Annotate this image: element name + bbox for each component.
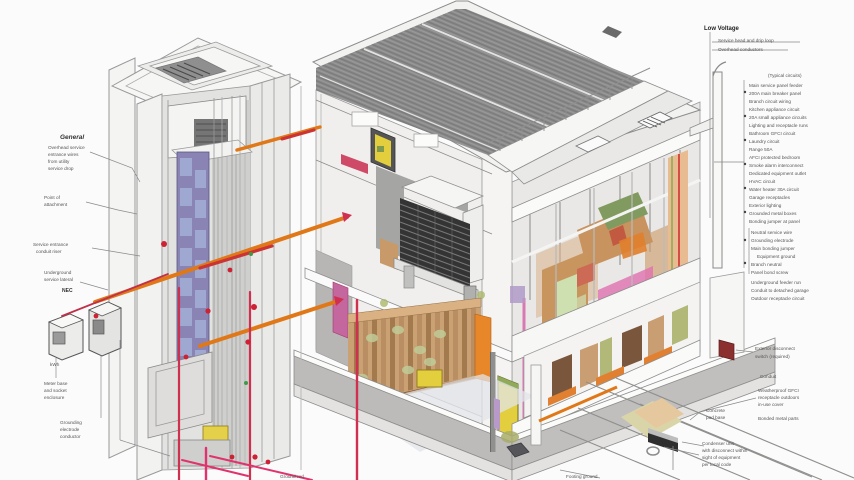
- svg-text:Weatherproof GFCI: Weatherproof GFCI: [758, 388, 799, 393]
- svg-text:AFCI protected bedroom: AFCI protected bedroom: [749, 155, 800, 160]
- svg-text:Branch circuit wiring: Branch circuit wiring: [749, 99, 791, 104]
- svg-text:Smoke alarm interconnect: Smoke alarm interconnect: [749, 163, 804, 168]
- svg-text:Equipment ground: Equipment ground: [757, 254, 796, 259]
- svg-text:switch (required): switch (required): [755, 354, 790, 359]
- svg-text:Grounded metal boxes: Grounded metal boxes: [749, 211, 797, 216]
- svg-text:receptacle outdoors: receptacle outdoors: [758, 395, 800, 400]
- svg-text:and socket: and socket: [44, 388, 67, 393]
- svg-text:Overhead conductors: Overhead conductors: [718, 47, 763, 52]
- svg-text:Neutral service wire: Neutral service wire: [751, 230, 793, 235]
- svg-text:entrance wires: entrance wires: [48, 152, 79, 157]
- svg-text:Outdoor receptacle circuit: Outdoor receptacle circuit: [751, 296, 805, 301]
- svg-text:Bathroom GFCI circuit: Bathroom GFCI circuit: [749, 131, 796, 136]
- svg-text:per local code: per local code: [702, 462, 732, 467]
- svg-text:enclosure: enclosure: [44, 395, 65, 400]
- svg-text:Ground rod: Ground rod: [280, 474, 304, 479]
- svg-text:Concrete: Concrete: [706, 408, 725, 413]
- svg-text:in-use cover: in-use cover: [758, 402, 784, 407]
- svg-text:kWh: kWh: [50, 362, 60, 367]
- svg-text:General: General: [60, 134, 84, 141]
- svg-text:conductor: conductor: [60, 434, 81, 439]
- svg-text:Laundry circuit: Laundry circuit: [749, 139, 780, 144]
- svg-text:Branch neutral: Branch neutral: [751, 262, 782, 267]
- svg-text:Exterior disconnect: Exterior disconnect: [755, 346, 796, 351]
- svg-text:Low Voltage: Low Voltage: [704, 26, 740, 32]
- svg-text:Condenser unit: Condenser unit: [702, 441, 734, 446]
- svg-text:Water heater 30A circuit: Water heater 30A circuit: [749, 187, 800, 192]
- svg-text:attachment: attachment: [44, 202, 68, 207]
- svg-text:pad base: pad base: [706, 415, 726, 420]
- svg-text:Bonding jumper at panel: Bonding jumper at panel: [749, 219, 800, 224]
- svg-text:Main service panel feeder: Main service panel feeder: [749, 83, 803, 88]
- svg-text:Range 50A: Range 50A: [749, 147, 773, 152]
- svg-text:service drop: service drop: [48, 166, 74, 171]
- svg-text:Grounding electrode: Grounding electrode: [751, 238, 794, 243]
- svg-text:Overhead service: Overhead service: [48, 145, 85, 150]
- svg-text:Garage receptacles: Garage receptacles: [749, 195, 791, 200]
- svg-text:Underground feeder run: Underground feeder run: [751, 280, 801, 285]
- svg-text:Panel bond screw: Panel bond screw: [751, 270, 789, 275]
- svg-text:from utility: from utility: [48, 159, 70, 164]
- svg-text:Conduit: Conduit: [760, 374, 777, 379]
- svg-text:HVAC circuit: HVAC circuit: [749, 179, 776, 184]
- svg-text:Meter base: Meter base: [44, 381, 68, 386]
- svg-text:Footing ground: Footing ground: [566, 474, 598, 479]
- svg-text:Lighting and receptacle runs: Lighting and receptacle runs: [749, 123, 809, 128]
- svg-text:Exterior lighting: Exterior lighting: [749, 203, 782, 208]
- svg-text:Underground: Underground: [44, 270, 72, 275]
- svg-text:Grounding: Grounding: [60, 420, 82, 425]
- svg-text:Service head and drip loop: Service head and drip loop: [718, 38, 774, 43]
- svg-text:with disconnect within: with disconnect within: [702, 448, 748, 453]
- svg-text:NEC: NEC: [62, 288, 73, 294]
- svg-text:Service entrance: Service entrance: [33, 242, 69, 247]
- svg-text:(Typical circuits): (Typical circuits): [768, 73, 802, 78]
- svg-text:Point of: Point of: [44, 195, 61, 200]
- svg-text:200A main breaker panel: 200A main breaker panel: [749, 91, 801, 96]
- svg-text:sight of equipment: sight of equipment: [702, 455, 741, 460]
- svg-text:Main bonding jumper: Main bonding jumper: [751, 246, 795, 251]
- svg-text:conduit riser: conduit riser: [36, 249, 62, 254]
- svg-text:Dedicated equipment outlet: Dedicated equipment outlet: [749, 171, 807, 176]
- svg-text:Bonded metal parts: Bonded metal parts: [758, 416, 799, 421]
- svg-text:Conduit to detached garage: Conduit to detached garage: [751, 288, 809, 293]
- svg-text:service lateral: service lateral: [44, 277, 73, 282]
- svg-text:Kitchen appliance circuit: Kitchen appliance circuit: [749, 107, 800, 112]
- svg-text:20A small appliance circuits: 20A small appliance circuits: [749, 115, 807, 120]
- svg-text:electrode: electrode: [60, 427, 80, 432]
